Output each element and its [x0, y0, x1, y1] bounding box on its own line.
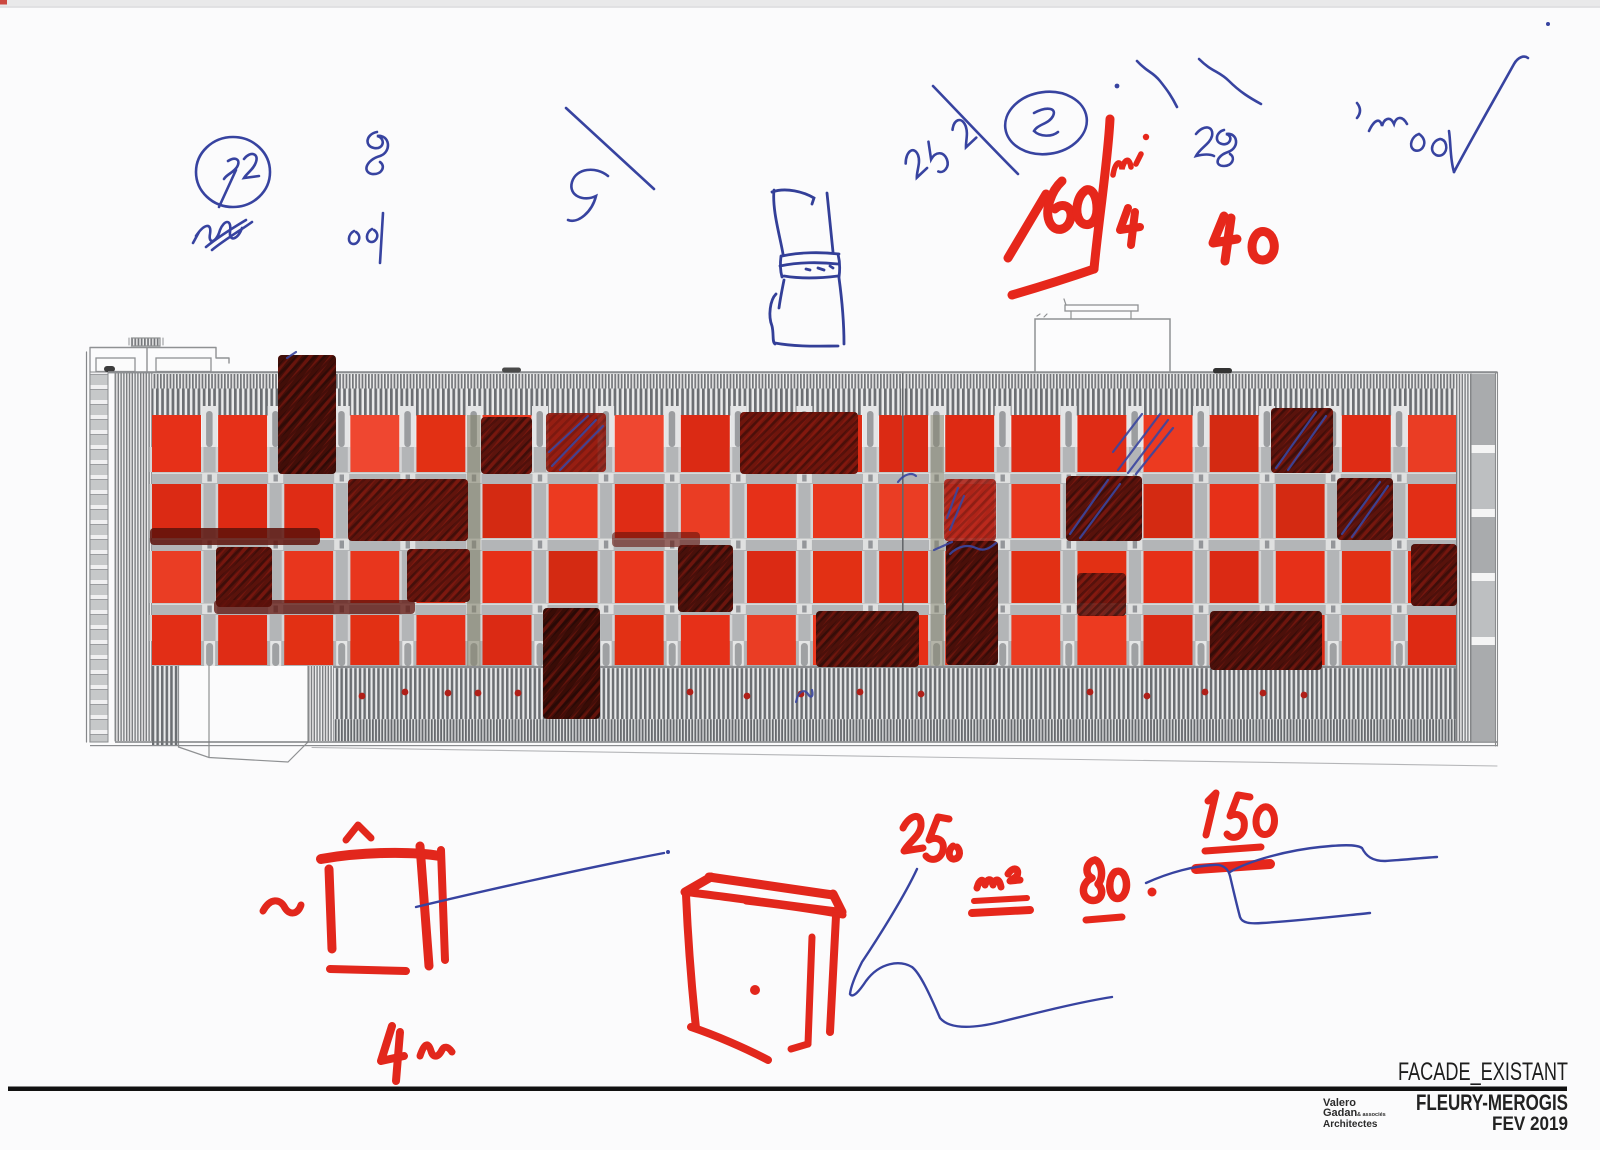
svg-text:& associés: & associés — [1357, 1112, 1386, 1118]
svg-text:FEV 2019: FEV 2019 — [1492, 1114, 1568, 1135]
svg-text:Architectes: Architectes — [1323, 1119, 1378, 1130]
svg-text:Gadan: Gadan — [1323, 1107, 1358, 1119]
svg-text:FLEURY-MEROGIS: FLEURY-MEROGIS — [1416, 1090, 1568, 1115]
svg-text:FACADE_EXISTANT: FACADE_EXISTANT — [1398, 1058, 1568, 1086]
